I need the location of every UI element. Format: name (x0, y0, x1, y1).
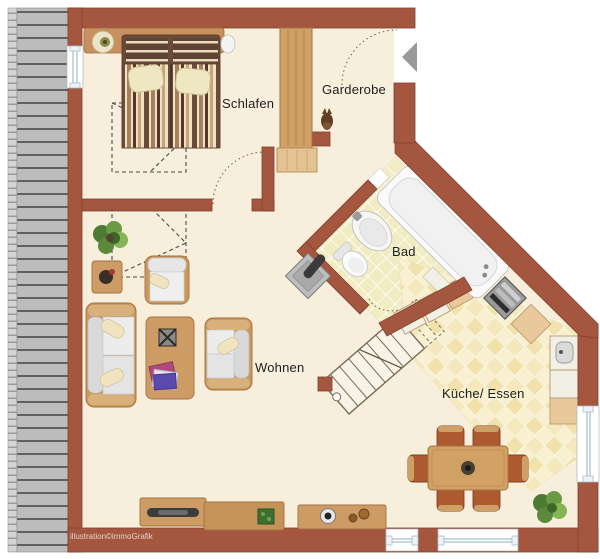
armchair (145, 256, 189, 304)
bottom-window-1 (386, 529, 418, 551)
wardrobe (280, 28, 312, 148)
bedside-lamp-2 (221, 35, 235, 53)
floor-plan: Schlafen Garderobe Bad Wohnen Küche/ Ess… (0, 0, 600, 559)
right-window (577, 406, 599, 482)
room-label-kueche: Küche/ Essen (442, 386, 525, 401)
room-label-bad: Bad (392, 244, 416, 259)
hall-bench (277, 148, 317, 172)
column (318, 377, 332, 391)
balcony-window (67, 46, 83, 88)
room-label-garderobe: Garderobe (322, 82, 386, 97)
magazines (149, 362, 178, 390)
dining-chair (473, 487, 500, 511)
entry-arrow-icon (402, 42, 417, 72)
dining-chair (437, 487, 464, 511)
side-table (92, 261, 122, 293)
watermark: illustration©immoGrafik (70, 532, 153, 541)
coffee-table (146, 317, 194, 399)
balcony-deck (8, 8, 70, 552)
floor-plan-drawing (0, 0, 600, 559)
table-decor (159, 329, 176, 346)
kitchen-sink (550, 336, 578, 370)
sideboard-tv (140, 498, 284, 530)
room-label-schlafen: Schlafen (222, 96, 274, 111)
bottom-window-2 (438, 529, 518, 551)
sideboard-deco (298, 505, 386, 529)
small-sofa (205, 318, 252, 390)
bedside-lamp (92, 31, 114, 53)
large-sofa (86, 303, 136, 407)
double-bed (122, 35, 220, 148)
room-label-wohnen: Wohnen (255, 360, 304, 375)
